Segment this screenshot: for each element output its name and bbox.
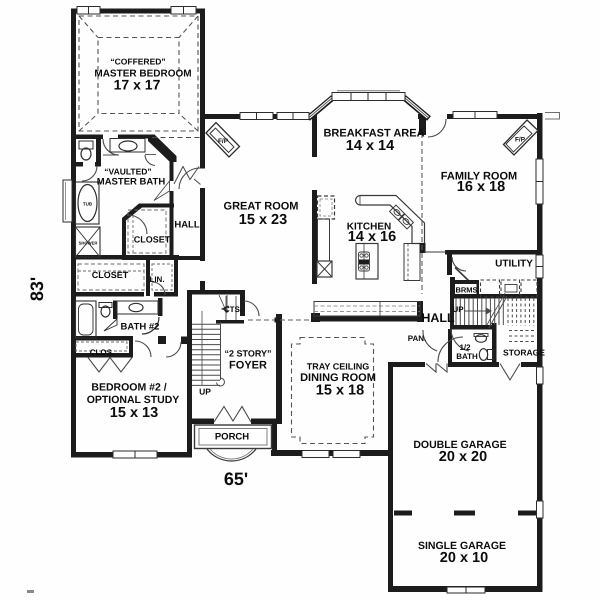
svg-text:BATH: BATH <box>456 352 478 361</box>
svg-text:14 x 16: 14 x 16 <box>348 229 396 245</box>
svg-text:F/P: F/P <box>515 137 526 144</box>
svg-text:PORCH: PORCH <box>215 432 249 443</box>
svg-text:“VAULTED”: “VAULTED” <box>104 167 151 177</box>
svg-text:15 x 23: 15 x 23 <box>239 212 287 228</box>
svg-text:BEDROOM #2 /: BEDROOM #2 / <box>91 382 166 394</box>
svg-text:15 x 13: 15 x 13 <box>110 405 158 421</box>
svg-text:20 x 20: 20 x 20 <box>439 449 487 465</box>
svg-text:UTILITY: UTILITY <box>495 259 533 270</box>
svg-text:SHOWER: SHOWER <box>79 241 98 246</box>
svg-text:F/P: F/P <box>218 138 229 145</box>
svg-text:STORAGE: STORAGE <box>503 348 545 358</box>
svg-text:BATH #2: BATH #2 <box>121 322 160 333</box>
svg-text:LIN.: LIN. <box>149 275 164 284</box>
svg-text:20 x 10: 20 x 10 <box>440 550 488 566</box>
svg-text:83': 83' <box>27 277 47 301</box>
svg-text:CLOSET: CLOSET <box>134 235 171 245</box>
svg-text:“COFFERED”: “COFFERED” <box>110 57 165 67</box>
svg-text:HALL: HALL <box>421 311 455 325</box>
svg-text:“2 STORY”: “2 STORY” <box>224 349 271 359</box>
svg-text:PAN.: PAN. <box>408 334 427 343</box>
svg-text:MASTER BATH: MASTER BATH <box>97 177 166 188</box>
svg-text:CLOSET: CLOSET <box>92 270 129 280</box>
svg-text:UP: UP <box>199 387 211 397</box>
svg-text:CTS.: CTS. <box>224 305 242 314</box>
svg-text:HALL: HALL <box>174 220 200 231</box>
svg-text:TUB: TUB <box>83 202 93 207</box>
svg-text:TRAY CEILING: TRAY CEILING <box>307 362 370 372</box>
svg-text:17 x 17: 17 x 17 <box>114 77 161 93</box>
svg-text:FOYER: FOYER <box>229 360 267 372</box>
svg-text:BRMS: BRMS <box>455 286 477 295</box>
svg-text:16 x 18: 16 x 18 <box>457 179 505 195</box>
svg-text:14 x 14: 14 x 14 <box>346 138 394 154</box>
svg-text:65': 65' <box>224 469 248 489</box>
svg-text:1/2: 1/2 <box>459 343 471 352</box>
svg-text:GREAT ROOM: GREAT ROOM <box>224 201 299 213</box>
svg-text:CLOS.: CLOS. <box>90 348 114 357</box>
svg-text:15 x 18: 15 x 18 <box>316 383 364 399</box>
